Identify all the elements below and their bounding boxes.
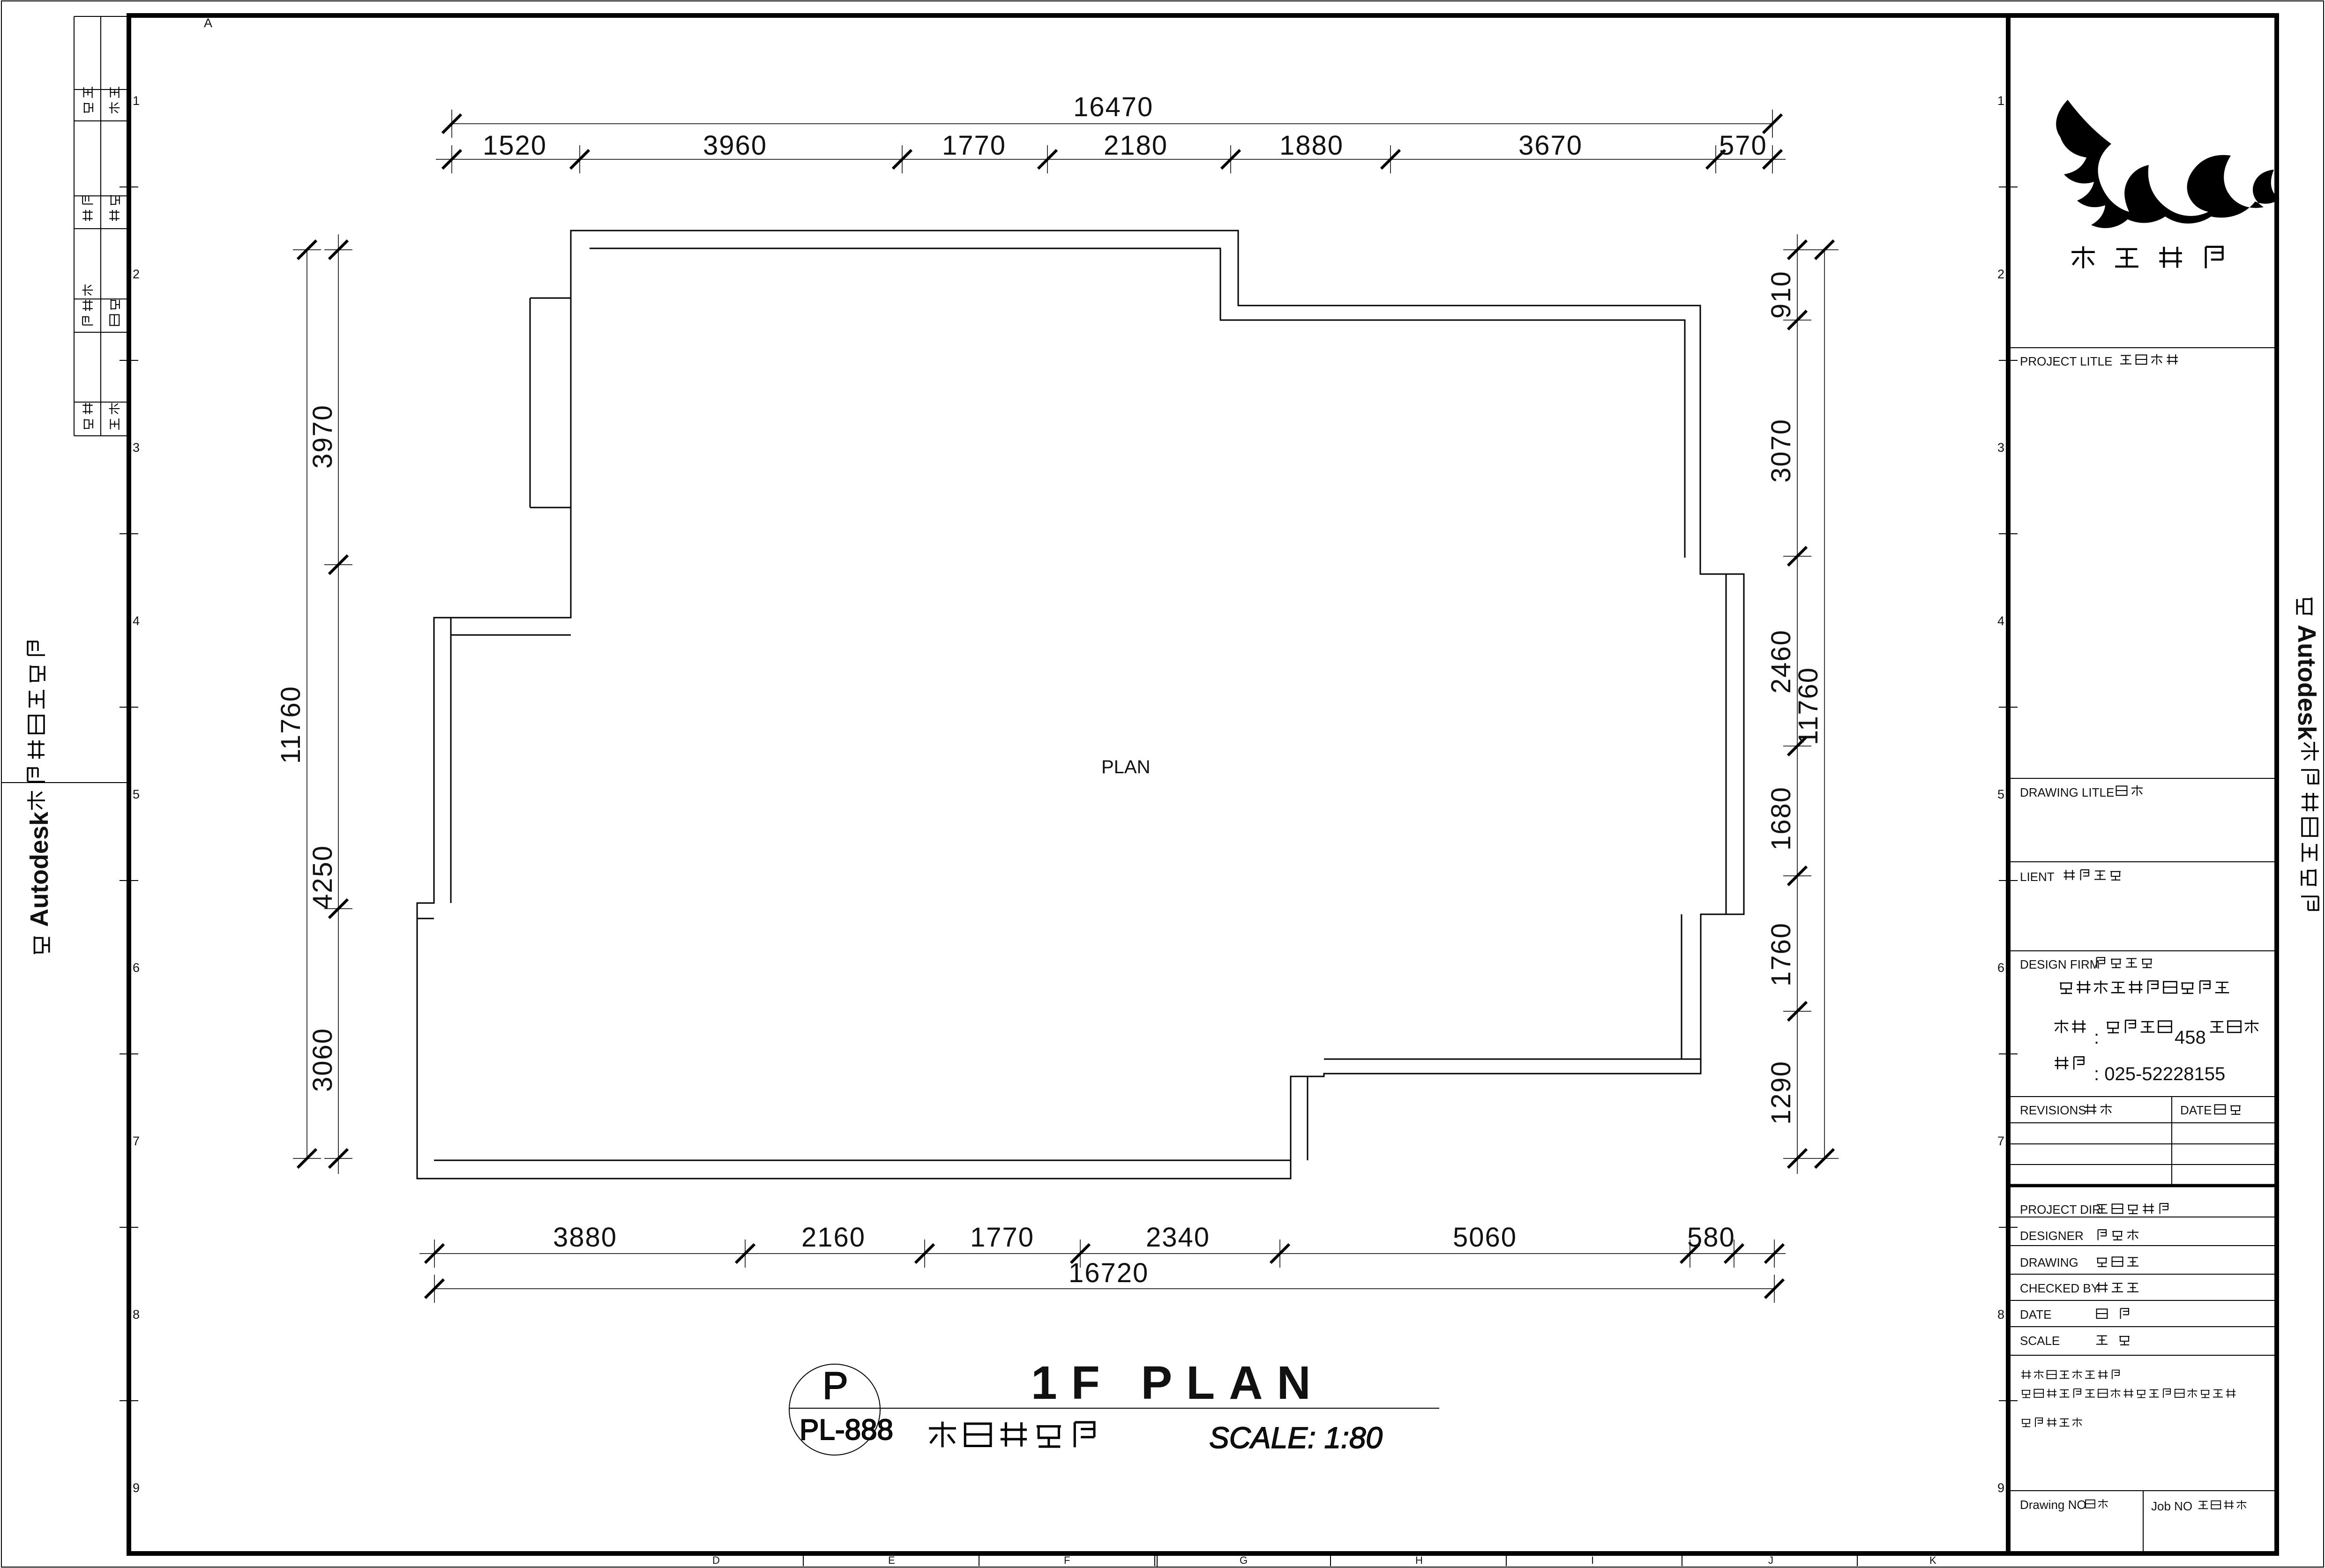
svg-text:1F PLAN: 1F PLAN — [1031, 1357, 1325, 1409]
svg-text:SCALE: 1:80: SCALE: 1:80 — [1209, 1421, 1383, 1455]
svg-text:11760: 11760 — [276, 686, 306, 764]
svg-text:1760: 1760 — [1766, 922, 1796, 986]
svg-text:P: P — [822, 1365, 848, 1407]
svg-text:DATE: DATE — [2020, 1307, 2051, 1322]
svg-text:16470: 16470 — [1073, 92, 1153, 122]
svg-text:3070: 3070 — [1766, 418, 1796, 483]
svg-text:3: 3 — [133, 441, 140, 455]
svg-text:6: 6 — [133, 961, 140, 975]
svg-text:4: 4 — [1997, 614, 2004, 628]
svg-text:910: 910 — [1766, 270, 1796, 319]
svg-text:5: 5 — [1997, 787, 2004, 801]
svg-text:PROJECT LITLE: PROJECT LITLE — [2020, 354, 2112, 368]
svg-text:8: 8 — [1997, 1307, 2004, 1322]
svg-text:8: 8 — [133, 1307, 140, 1322]
svg-text:1: 1 — [133, 94, 140, 108]
svg-text:1770: 1770 — [970, 1222, 1034, 1253]
svg-text:DRAWING LITLE: DRAWING LITLE — [2020, 785, 2114, 799]
svg-text:G: G — [1240, 1554, 1248, 1566]
svg-text:580: 580 — [1687, 1222, 1735, 1253]
svg-text:DESIGN FIRM: DESIGN FIRM — [2020, 957, 2100, 971]
svg-text:REVISIONS: REVISIONS — [2020, 1103, 2086, 1117]
svg-text:DATE: DATE — [2180, 1103, 2212, 1117]
svg-text:Job NO: Job NO — [2151, 1499, 2192, 1513]
svg-text:2180: 2180 — [1104, 130, 1168, 161]
svg-text:K: K — [1929, 1554, 1936, 1566]
svg-text:2: 2 — [1997, 267, 2004, 281]
svg-text:2460: 2460 — [1766, 629, 1796, 694]
svg-text:E: E — [888, 1554, 895, 1566]
svg-text:Drawing NO: Drawing NO — [2020, 1498, 2086, 1512]
svg-text:A: A — [204, 16, 212, 30]
svg-text:PL-888: PL-888 — [800, 1414, 893, 1446]
svg-text:5060: 5060 — [1453, 1222, 1517, 1253]
svg-text:2160: 2160 — [801, 1222, 866, 1253]
svg-text:1: 1 — [1997, 94, 2004, 108]
svg-text:11760: 11760 — [1793, 667, 1824, 745]
svg-text:F: F — [1064, 1554, 1070, 1566]
svg-text:3970: 3970 — [307, 404, 338, 469]
svg-text:SCALE: SCALE — [2020, 1334, 2060, 1348]
svg-text:9: 9 — [1997, 1481, 2004, 1495]
svg-text:PLAN: PLAN — [1101, 757, 1151, 777]
svg-text:7: 7 — [133, 1134, 140, 1148]
svg-text::: : — [2094, 1027, 2099, 1048]
svg-text:2340: 2340 — [1146, 1222, 1210, 1253]
svg-text:3880: 3880 — [553, 1222, 617, 1253]
svg-text:H: H — [1415, 1554, 1423, 1566]
svg-text:458: 458 — [2175, 1027, 2206, 1048]
svg-text:PROJECT DIR: PROJECT DIR — [2020, 1202, 2101, 1217]
svg-text:3: 3 — [1997, 441, 2004, 455]
svg-text:570: 570 — [1719, 130, 1767, 161]
svg-text:1880: 1880 — [1279, 130, 1344, 161]
svg-text:9: 9 — [133, 1481, 140, 1495]
svg-text:Autodesk: Autodesk — [2293, 625, 2321, 740]
svg-text:I: I — [1591, 1554, 1594, 1566]
svg-text:1290: 1290 — [1766, 1060, 1796, 1125]
svg-text:: 025-52228155: : 025-52228155 — [2094, 1064, 2225, 1084]
svg-text:DRAWING: DRAWING — [2020, 1255, 2078, 1269]
svg-text:3060: 3060 — [307, 1028, 338, 1092]
svg-text:7: 7 — [1997, 1134, 2004, 1148]
svg-text:J: J — [1768, 1554, 1773, 1566]
svg-text:5: 5 — [133, 787, 140, 801]
svg-text:1770: 1770 — [942, 130, 1006, 161]
svg-text:Autodesk: Autodesk — [25, 811, 53, 927]
svg-text:3670: 3670 — [1518, 130, 1583, 161]
svg-text:1520: 1520 — [483, 130, 547, 161]
svg-text:LIENT: LIENT — [2020, 870, 2055, 884]
svg-text:4250: 4250 — [307, 845, 338, 909]
svg-text:6: 6 — [1997, 961, 2004, 975]
svg-text:4: 4 — [133, 614, 140, 628]
svg-text:1680: 1680 — [1766, 786, 1796, 851]
svg-text:16720: 16720 — [1069, 1258, 1149, 1288]
svg-text:D: D — [712, 1554, 720, 1566]
svg-text:2: 2 — [133, 267, 140, 281]
svg-text:DESIGNER: DESIGNER — [2020, 1229, 2084, 1243]
svg-text:CHECKED BY: CHECKED BY — [2020, 1281, 2099, 1295]
svg-text:3960: 3960 — [703, 130, 767, 161]
